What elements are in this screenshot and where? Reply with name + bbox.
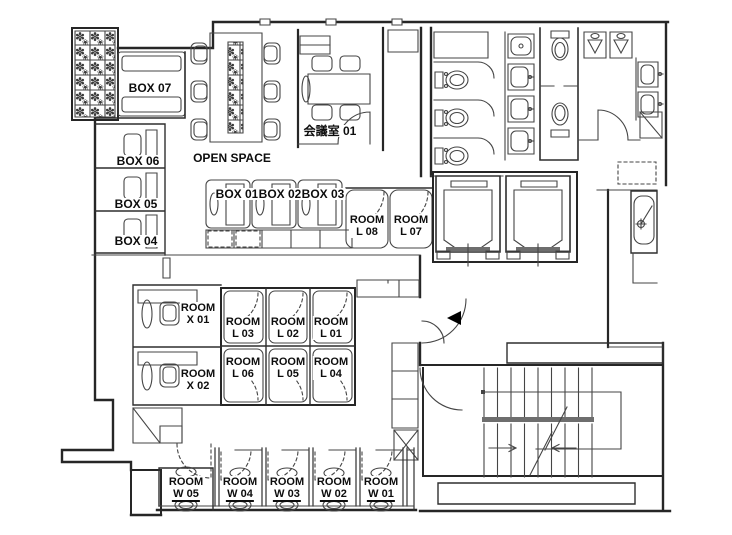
floor-plan-linework: ✽ ❀ (0, 0, 732, 535)
label-box04: BOX 04 (114, 235, 159, 247)
entrance-arrow-icon (447, 311, 461, 325)
urinals (584, 32, 632, 58)
label-room-l03: ROOML 03 (225, 316, 261, 340)
sink-icon (508, 96, 534, 122)
label-room-w05: ROOMW 05 (168, 476, 204, 500)
label-room-l05: ROOML 05 (270, 356, 306, 380)
label-room-w02: ROOMW 02 (316, 476, 352, 500)
sink-icon (508, 128, 534, 154)
grid-cabinets (357, 280, 419, 460)
label-room-l06: ROOML 06 (225, 356, 261, 380)
sink-icon (638, 62, 663, 87)
elevator-1 (436, 176, 500, 266)
utility-sink-icon (508, 34, 534, 58)
label-open-space: OPEN SPACE (192, 152, 272, 164)
storage-closet (133, 408, 182, 443)
locker-row (206, 230, 352, 248)
toilet-stalls (431, 62, 503, 176)
label-room-w03: ROOMW 03 (269, 476, 305, 500)
mens-sinks (636, 58, 663, 120)
kitchenette (597, 162, 663, 347)
sink-counter (505, 32, 534, 160)
toilet-icon (551, 31, 569, 60)
toilet-icon (435, 109, 468, 127)
label-room-l07: ROOML 07 (393, 214, 429, 238)
corridor-cabinet (388, 30, 418, 52)
sink-icon (508, 64, 534, 90)
toilet-icon (435, 147, 468, 165)
label-room-w01: ROOMW 01 (363, 476, 399, 500)
label-box05: BOX 05 (114, 198, 159, 210)
open-space-table (191, 33, 280, 142)
l-room-grid (221, 288, 355, 405)
toilet-icon (435, 71, 468, 89)
label-box03: BOX 03 (301, 188, 346, 200)
label-room-w04: ROOMW 04 (222, 476, 258, 500)
toilet-stall-closet (434, 32, 488, 58)
label-room-l08: ROOML 08 (349, 214, 385, 238)
floor-plan: ✽ ❀ (0, 0, 732, 535)
label-room-l01: ROOML 01 (313, 316, 349, 340)
label-box07: BOX 07 (128, 82, 173, 94)
label-box01: BOX 01 (215, 188, 260, 200)
wc-room-middle (540, 28, 578, 160)
label-room-l02: ROOML 02 (270, 316, 306, 340)
toilet-icon (551, 103, 569, 137)
slop-sink-icon (631, 191, 657, 253)
label-room-x01: ROOMX 01 (180, 302, 216, 326)
label-box06: BOX 06 (116, 155, 161, 167)
urinal-icon (584, 32, 606, 58)
label-room-l04: ROOML 04 (313, 356, 349, 380)
staircase (420, 343, 663, 504)
label-meeting-room: 会議室 01 (303, 125, 358, 137)
urinal-icon (610, 32, 632, 58)
entry-step-block (131, 470, 161, 515)
label-box02: BOX 02 (258, 188, 303, 200)
plant-bed (72, 28, 118, 120)
elevator-2 (506, 176, 570, 266)
label-room-x02: ROOMX 02 (180, 368, 216, 392)
